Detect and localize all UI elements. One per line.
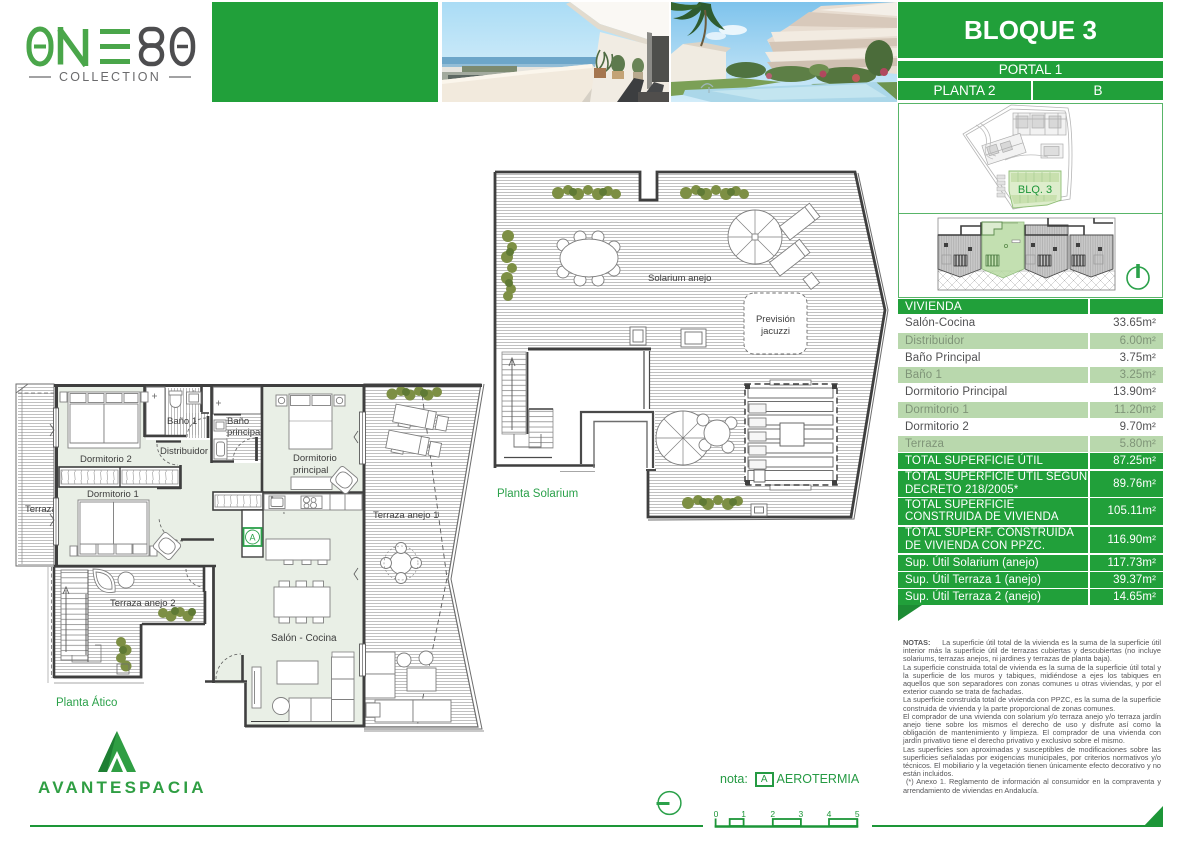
svg-text:Planta Ático: Planta Ático — [56, 696, 117, 709]
svg-text:Dormitorio 1: Dormitorio 1 — [87, 489, 139, 500]
svg-text:Terraza anejo 2: Terraza anejo 2 — [110, 598, 175, 609]
svg-text:Terraza anejo 1: Terraza anejo 1 — [373, 510, 438, 521]
svg-text:3: 3 — [799, 809, 804, 819]
svg-text:Previsión: Previsión — [756, 314, 795, 325]
svg-text:0: 0 — [714, 809, 719, 819]
svg-text:A: A — [249, 533, 255, 543]
svg-text:Baño: Baño — [227, 416, 249, 427]
svg-text:jacuzzi: jacuzzi — [760, 326, 790, 337]
svg-text:4: 4 — [827, 809, 832, 819]
svg-text:2: 2 — [770, 809, 775, 819]
svg-text:principal: principal — [227, 427, 262, 438]
svg-text:5: 5 — [855, 809, 860, 819]
svg-text:1: 1 — [741, 809, 746, 819]
svg-text:Distribuidor: Distribuidor — [160, 446, 208, 457]
svg-text:Salón - Cocina: Salón - Cocina — [271, 633, 337, 644]
svg-text:Planta Solarium: Planta Solarium — [497, 488, 578, 500]
svg-text:principal: principal — [293, 465, 328, 476]
svg-text:Dormitorio 2: Dormitorio 2 — [80, 454, 132, 465]
svg-text:Baño 1: Baño 1 — [167, 416, 197, 427]
svg-text:Solarium anejo: Solarium anejo — [648, 273, 711, 284]
svg-text:Terraza: Terraza — [25, 504, 57, 515]
svg-text:Dormitorio: Dormitorio — [293, 453, 337, 464]
svg-text:AVANTESPACIA: AVANTESPACIA — [38, 778, 207, 797]
